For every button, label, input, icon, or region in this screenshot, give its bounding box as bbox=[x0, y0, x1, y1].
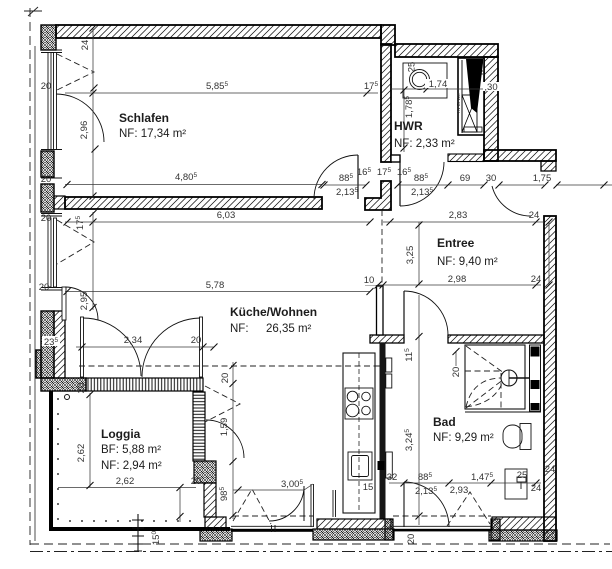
svg-text:1,75: 1,75 bbox=[533, 173, 552, 184]
svg-text:20: 20 bbox=[39, 282, 50, 293]
svg-text:20: 20 bbox=[41, 174, 52, 185]
svg-text:26,35 m²: 26,35 m² bbox=[266, 323, 312, 335]
svg-text:24: 24 bbox=[529, 210, 540, 221]
svg-text:20: 20 bbox=[76, 383, 87, 394]
svg-text:1,74: 1,74 bbox=[429, 79, 448, 90]
svg-text:20: 20 bbox=[220, 373, 231, 384]
svg-text:2,62: 2,62 bbox=[76, 444, 87, 463]
svg-text:HV EI Vert: HV EI Vert bbox=[456, 93, 461, 113]
svg-text:24: 24 bbox=[531, 274, 542, 285]
svg-text:NF: 9,29 m²: NF: 9,29 m² bbox=[433, 432, 494, 444]
svg-text:,30: ,30 bbox=[484, 82, 497, 93]
svg-text:2,98: 2,98 bbox=[448, 274, 467, 285]
svg-text:15: 15 bbox=[363, 482, 374, 493]
svg-text:25: 25 bbox=[407, 62, 418, 73]
svg-text:NF: 2,33 m²: NF: 2,33 m² bbox=[394, 138, 455, 150]
svg-text:Entree: Entree bbox=[437, 236, 475, 250]
svg-text:Schlafen: Schlafen bbox=[119, 111, 169, 125]
svg-text:2,34: 2,34 bbox=[124, 335, 143, 346]
svg-text:30: 30 bbox=[486, 173, 497, 184]
svg-text:25: 25 bbox=[517, 470, 528, 481]
svg-text:24: 24 bbox=[531, 483, 542, 494]
svg-text:2,95: 2,95 bbox=[79, 292, 90, 311]
svg-text:2,62: 2,62 bbox=[116, 476, 135, 487]
svg-text:20: 20 bbox=[191, 476, 202, 487]
svg-text:5,78: 5,78 bbox=[206, 280, 225, 291]
svg-text:2,83: 2,83 bbox=[449, 210, 468, 221]
svg-text:NF: 2,94 m²: NF: 2,94 m² bbox=[101, 460, 162, 472]
svg-text:Loggia: Loggia bbox=[101, 427, 141, 441]
svg-text:HWR: HWR bbox=[394, 119, 423, 133]
svg-text:10: 10 bbox=[364, 275, 375, 286]
svg-text:2,93: 2,93 bbox=[450, 485, 469, 496]
svg-text:Küche/Wohnen: Küche/Wohnen bbox=[230, 305, 317, 319]
svg-text:24: 24 bbox=[80, 40, 91, 51]
svg-text:1,59: 1,59 bbox=[219, 418, 230, 437]
svg-text:20: 20 bbox=[406, 534, 417, 545]
svg-text:6,03: 6,03 bbox=[217, 210, 236, 221]
svg-text:24: 24 bbox=[545, 464, 556, 475]
svg-text:20: 20 bbox=[451, 367, 462, 378]
svg-text:2,96: 2,96 bbox=[79, 121, 90, 140]
svg-text:Bad: Bad bbox=[433, 415, 456, 429]
svg-text:BF: 5,88 m²: BF: 5,88 m² bbox=[101, 444, 161, 456]
svg-text:20: 20 bbox=[41, 81, 52, 92]
svg-text:3,25: 3,25 bbox=[405, 246, 416, 265]
svg-text:NF:: NF: bbox=[230, 323, 249, 335]
svg-text:20: 20 bbox=[191, 335, 202, 346]
svg-text:32: 32 bbox=[387, 472, 398, 483]
svg-text:20: 20 bbox=[41, 213, 52, 224]
svg-text:NF: 17,34 m²: NF: 17,34 m² bbox=[119, 128, 186, 140]
svg-text:NF: 9,40 m²: NF: 9,40 m² bbox=[437, 256, 498, 268]
svg-text:69: 69 bbox=[460, 173, 471, 184]
